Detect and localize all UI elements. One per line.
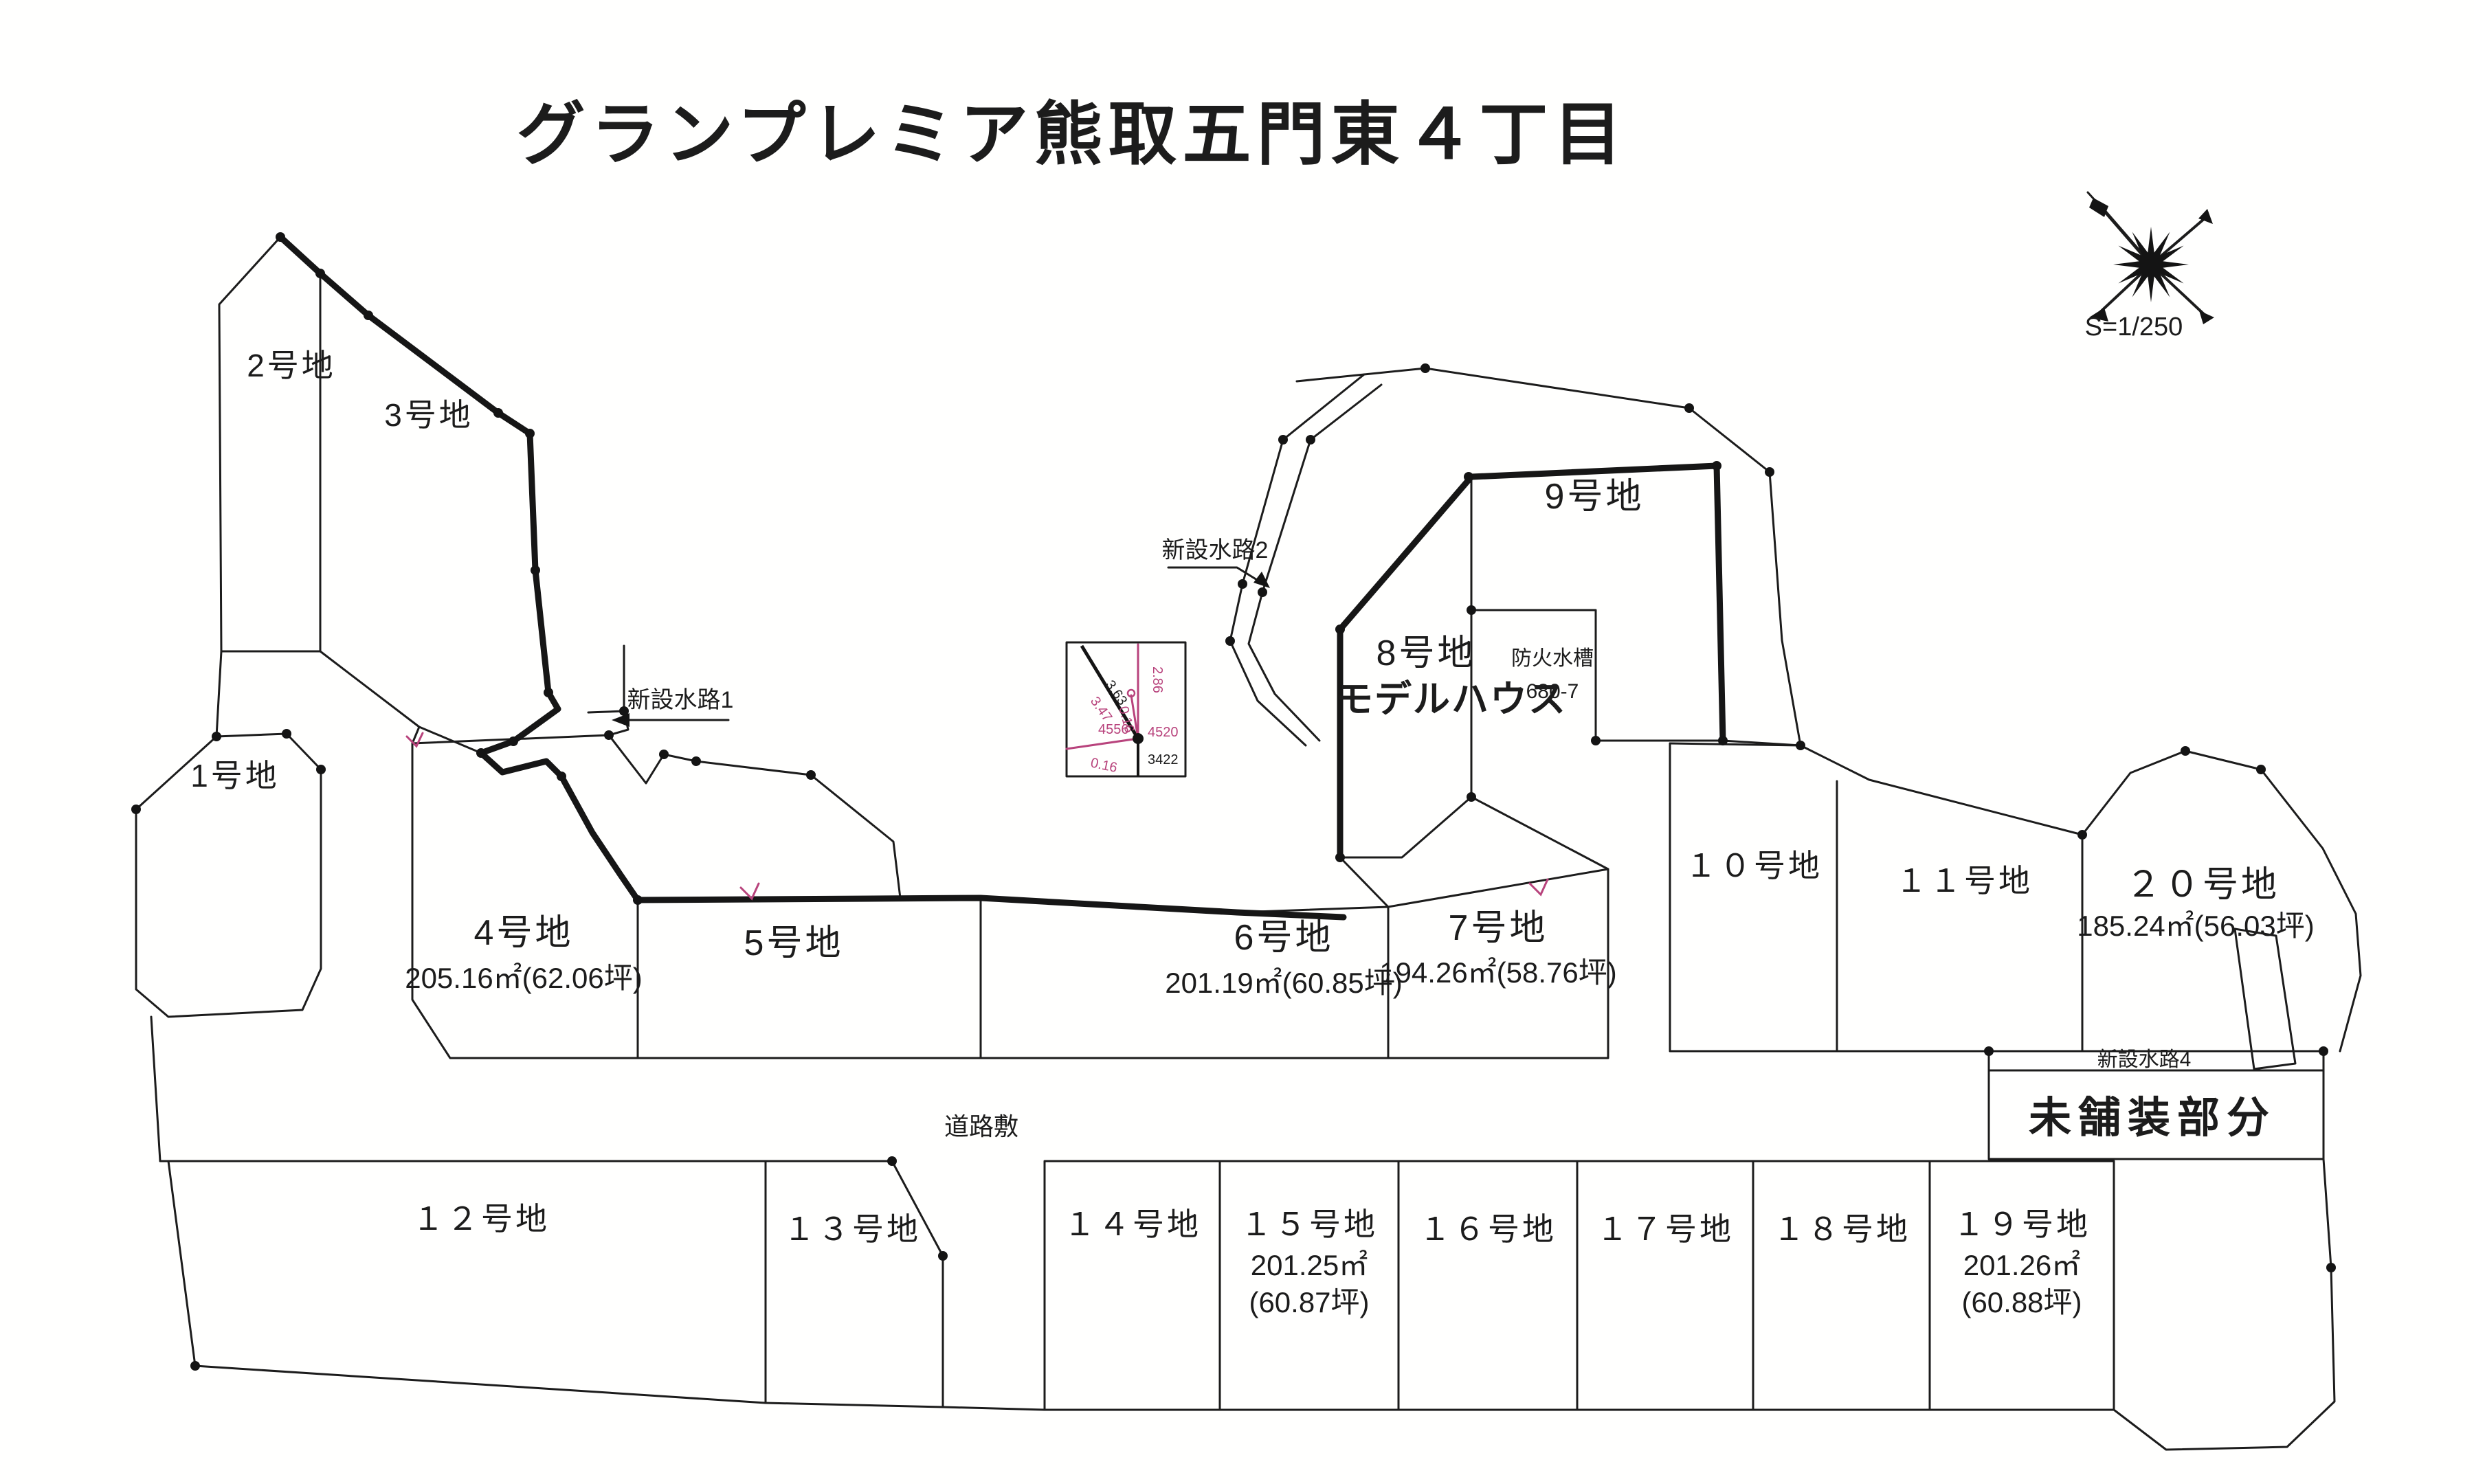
lot-label-5: 5号地 bbox=[744, 923, 844, 963]
scale-label: S=1/250 bbox=[2085, 313, 2183, 341]
inset-num-4556: 4556 bbox=[1098, 722, 1129, 737]
lot-label-18: １８号地 bbox=[1773, 1211, 1910, 1247]
inset-dim-286: 2.86 bbox=[1150, 666, 1165, 693]
fire-tank-label: 防火水槽 bbox=[1511, 647, 1594, 670]
lot-tsubo-15: (60.87坪) bbox=[1249, 1286, 1369, 1318]
compass-rose-icon bbox=[2088, 192, 2214, 324]
lot-area-20: 185.24㎡(56.03坪) bbox=[2077, 910, 2315, 942]
lot-area-7: 194.26㎡(58.76坪) bbox=[1379, 956, 1617, 989]
measurement-inset-box: 3.63 3.47 2.86 0.16 0.16 4556 4520 3422 bbox=[1067, 642, 1185, 776]
inset-dim-016b: 0.16 bbox=[1089, 755, 1119, 776]
lot-label-10: １０号地 bbox=[1685, 848, 1823, 884]
lot-area-19: 201.26㎡ bbox=[1963, 1249, 2080, 1281]
lot-label-1: 1号地 bbox=[190, 758, 280, 794]
inset-num-3422: 3422 bbox=[1148, 752, 1179, 767]
pink-tick-marks bbox=[407, 733, 1548, 899]
lot-label-19: １９号地 bbox=[1953, 1206, 2091, 1242]
lot-area-6: 201.19㎡(60.85坪) bbox=[1165, 967, 1403, 999]
lot-label-15: １５号地 bbox=[1240, 1206, 1378, 1242]
lot-label-3: 3号地 bbox=[384, 397, 473, 433]
lot-label-8: 8号地 bbox=[1377, 633, 1476, 673]
lot-area-15: 201.25㎡ bbox=[1251, 1249, 1368, 1281]
lot-area-4: 205.16㎡(62.06坪) bbox=[405, 962, 643, 994]
lot-label-6: 6号地 bbox=[1234, 918, 1334, 958]
lot-label-14: １４号地 bbox=[1064, 1206, 1201, 1242]
inset-dim-347: 3.47 bbox=[1087, 694, 1115, 725]
waterway4-label: 新設水路4 bbox=[2097, 1048, 2192, 1071]
unpaved-section-label: 未舗装部分 bbox=[2029, 1094, 2276, 1142]
road-label: 道路敷 bbox=[944, 1112, 1018, 1140]
lot-label-11: １１号地 bbox=[1895, 863, 2033, 899]
page-title: グランプレミア熊取五門東４丁目 bbox=[517, 96, 1628, 173]
site-plan-page: グランプレミア熊取五門東４丁目 bbox=[0, 0, 2474, 1484]
lot-label-20: ２０号地 bbox=[2126, 865, 2280, 905]
inset-num-4520: 4520 bbox=[1148, 725, 1179, 740]
waterway2-label: 新設水路2 bbox=[1162, 537, 1269, 563]
waterway2-leader bbox=[1168, 567, 1270, 588]
lot-label-12: １２号地 bbox=[412, 1201, 550, 1237]
waterway1-label: 新設水路1 bbox=[627, 687, 734, 713]
lot-label-13: １３号地 bbox=[783, 1211, 921, 1247]
lot-label-9: 9号地 bbox=[1545, 477, 1645, 517]
lot-label-2: 2号地 bbox=[247, 348, 336, 383]
waterway1-arrow bbox=[612, 713, 728, 727]
lot-label-7: 7号地 bbox=[1449, 908, 1548, 948]
lot-tsubo-19: (60.88坪) bbox=[1961, 1286, 2082, 1318]
lot-label-4: 4号地 bbox=[474, 913, 574, 953]
lot-label-17: １７号地 bbox=[1596, 1211, 1734, 1247]
site-plan-map: グランプレミア熊取五門東４丁目 bbox=[0, 0, 2474, 1484]
fire-tank-number: 680-7 bbox=[1526, 680, 1579, 703]
lot-label-16: １６号地 bbox=[1419, 1211, 1557, 1247]
